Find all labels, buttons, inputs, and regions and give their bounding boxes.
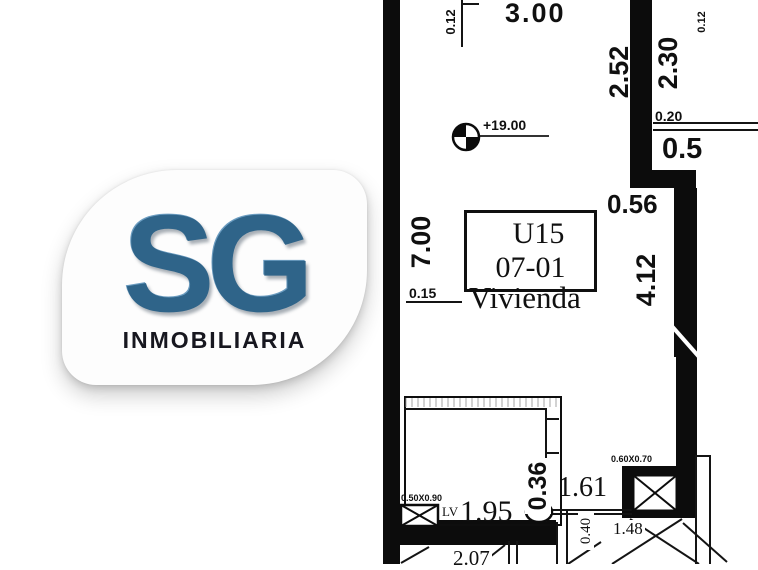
fixture-size-label: 0.50X0.90 <box>401 494 442 503</box>
fixture-box-icon <box>401 505 438 526</box>
door-slash <box>670 324 700 358</box>
unit-id-line1: U15 <box>497 217 565 251</box>
dim-195-bath: 1.95 <box>460 497 513 527</box>
bottom-diagonals <box>401 519 727 564</box>
dim-012-top-right: 0.12 <box>696 9 708 35</box>
dim-207-bottom: 2.07 <box>451 548 492 569</box>
dim-252-right: 2.52 <box>606 44 632 100</box>
floor-plan-page: SG INMOBILIARIA <box>0 0 758 564</box>
shaft-size-label: 0.60X0.70 <box>611 455 652 464</box>
fixture-label: LV <box>442 505 458 518</box>
level-mark-value: +19.00 <box>483 118 526 132</box>
dim-230-right: 2.30 <box>655 35 681 91</box>
dim-148-low: 1.48 <box>611 520 645 537</box>
dim-300-top: 3.00 <box>505 0 566 27</box>
dim-020-right: 0.20 <box>655 109 682 123</box>
dim-012-top-left: 0.12 <box>443 5 457 39</box>
dim-036-bath: 0.36 <box>525 458 551 514</box>
dim-056-mid: 0.56 <box>607 191 658 217</box>
unit-id-box: U15 07-01 <box>464 210 597 292</box>
dim-040-low: 0.40 <box>578 512 594 550</box>
dim-700-left: 7.00 <box>408 214 434 270</box>
dim-05-right: 0.5 <box>662 135 702 164</box>
dim-161-hall: 1.61 <box>558 474 607 502</box>
unit-id-line2: 07-01 <box>496 251 566 285</box>
shaft-box-icon <box>633 475 677 511</box>
dim-015-left: 0.15 <box>409 286 436 300</box>
dim-412-mid: 4.12 <box>633 252 659 308</box>
